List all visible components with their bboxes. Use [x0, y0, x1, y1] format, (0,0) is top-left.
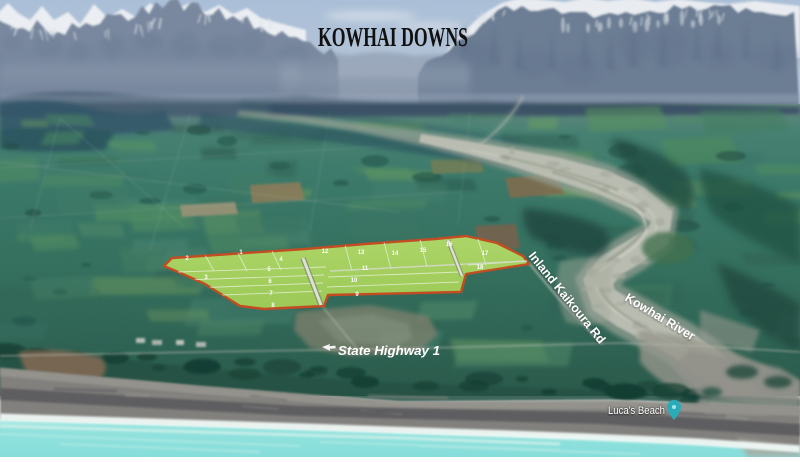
svg-text:Luca's Beach: Luca's Beach: [608, 405, 665, 417]
svg-text:KOWHAI DOWNS: KOWHAI DOWNS: [318, 22, 468, 52]
svg-text:State Highway 1: State Highway 1: [338, 343, 440, 358]
